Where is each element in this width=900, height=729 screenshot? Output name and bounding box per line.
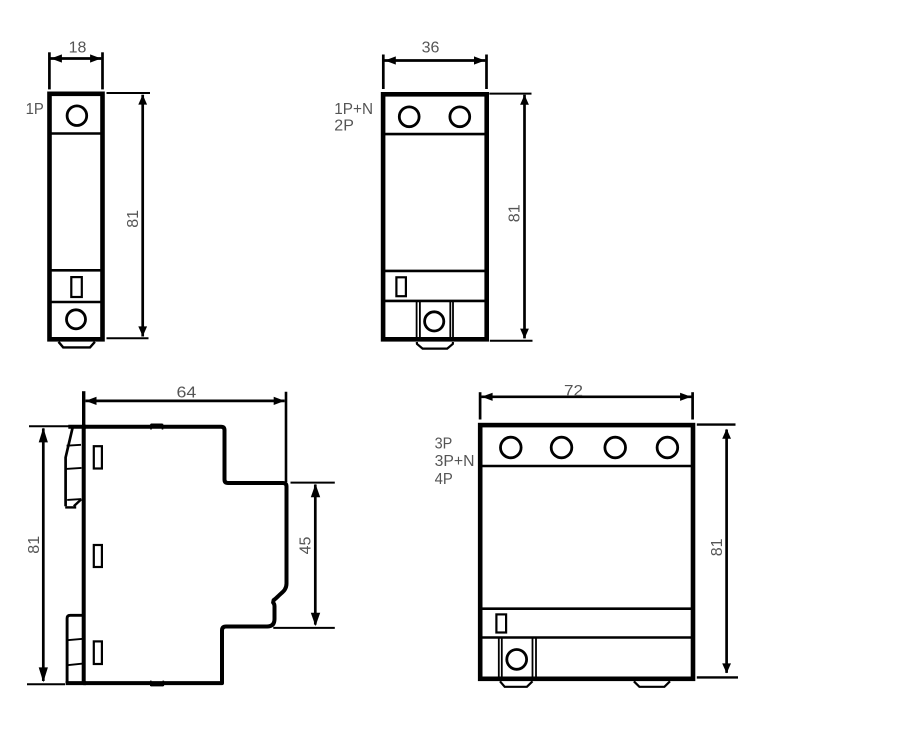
svg-text:1P: 1P	[26, 101, 44, 118]
svg-text:81: 81	[26, 536, 43, 554]
svg-text:81: 81	[125, 210, 142, 228]
svg-text:1P+N: 1P+N	[334, 101, 373, 118]
svg-text:45: 45	[298, 537, 315, 555]
svg-text:64: 64	[177, 384, 197, 401]
svg-text:18: 18	[69, 40, 87, 57]
svg-text:3P: 3P	[435, 435, 453, 452]
svg-text:72: 72	[564, 383, 583, 400]
svg-text:4P: 4P	[435, 471, 453, 488]
svg-text:3P+N: 3P+N	[435, 453, 475, 470]
svg-text:36: 36	[422, 40, 440, 57]
svg-text:81: 81	[709, 538, 726, 556]
svg-text:2P: 2P	[334, 118, 354, 135]
svg-text:81: 81	[507, 204, 524, 222]
